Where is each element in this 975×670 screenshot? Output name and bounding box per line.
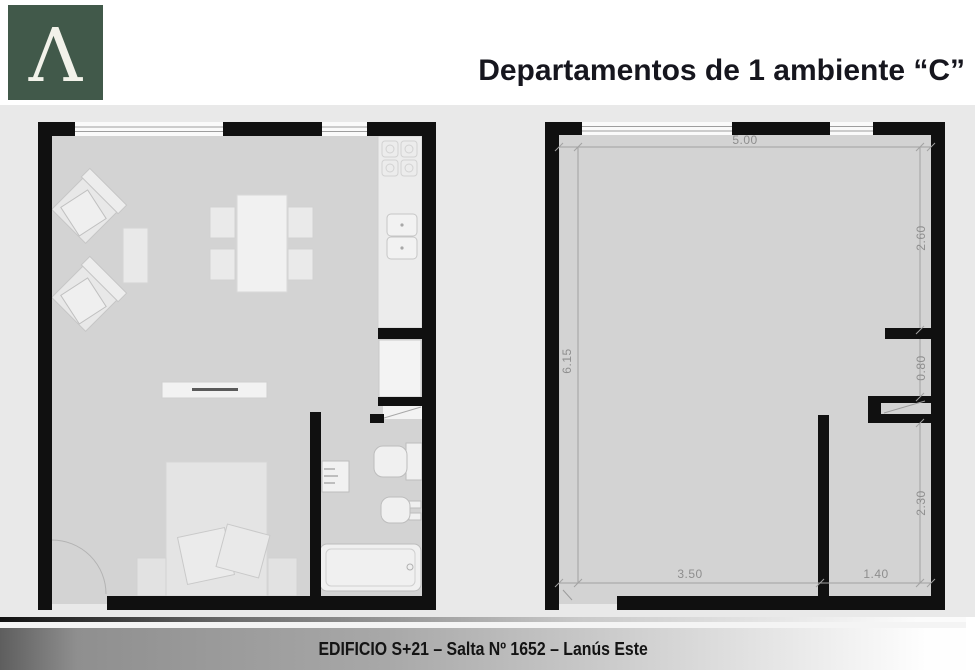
lambda-logo-glyph: Λ <box>29 19 82 93</box>
floor <box>552 128 932 604</box>
nightstand <box>137 558 166 596</box>
toilet <box>374 443 422 480</box>
dining-chair <box>210 207 235 238</box>
dim-right-middle: 0.80 <box>914 355 928 380</box>
dining-table <box>237 195 287 292</box>
window <box>322 122 367 136</box>
kitchen-sink <box>387 214 417 259</box>
floorplans-canvas: 5.00 6.15 2.60 0.80 2.30 3.50 1.40 <box>0 105 975 617</box>
furnished-plan <box>38 122 436 610</box>
tv <box>192 388 238 391</box>
dim-right-lower: 2.30 <box>914 490 928 515</box>
dim-right-upper: 2.60 <box>914 225 928 250</box>
dining-chair <box>210 249 235 280</box>
page-title: Departamentos de 1 ambiente “C” <box>478 54 965 88</box>
footer-text: EDIFICIO S+21 – Salta Nº 1652 – Lanús Es… <box>318 639 647 660</box>
footer-bar: EDIFICIO S+21 – Salta Nº 1652 – Lanús Es… <box>0 628 966 670</box>
wardrobe <box>379 340 421 397</box>
window <box>75 122 223 136</box>
nightstand <box>268 558 297 596</box>
side-table <box>123 228 148 283</box>
footer: EDIFICIO S+21 – Salta Nº 1652 – Lanús Es… <box>0 617 975 670</box>
dim-bottom-right: 1.40 <box>863 567 888 581</box>
window <box>582 122 732 135</box>
dim-left-height: 6.15 <box>560 348 574 373</box>
dining-chair <box>288 207 313 238</box>
dimensioned-plan: 5.00 6.15 2.60 0.80 2.30 3.50 1.40 <box>545 122 945 610</box>
dining-chair <box>288 249 313 280</box>
company-logo: Λ <box>8 5 103 100</box>
bathtub <box>320 544 421 591</box>
dim-top-width: 5.00 <box>732 133 757 147</box>
dim-bottom-left: 3.50 <box>677 567 702 581</box>
window <box>830 122 873 135</box>
washbasin <box>322 461 349 492</box>
